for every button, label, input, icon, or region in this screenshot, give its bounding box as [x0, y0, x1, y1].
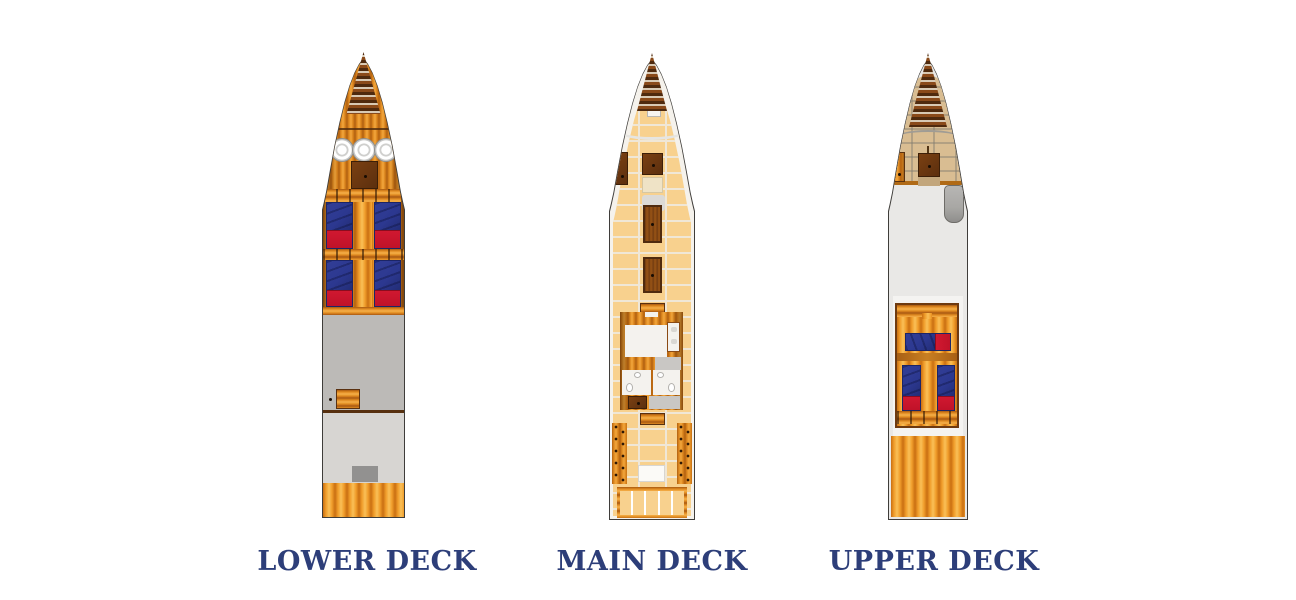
lounge-divider: [897, 353, 957, 361]
galley-fixture: [671, 327, 677, 332]
storage-room: [323, 413, 404, 483]
dining-table: [643, 205, 662, 243]
deckhouse: [620, 312, 683, 410]
locker-row: [897, 411, 957, 424]
saloon: [625, 325, 667, 357]
sun-lounge: [895, 303, 959, 428]
stern-deck: [891, 436, 965, 517]
sun-bed: [905, 333, 951, 351]
cabinet-row: [323, 249, 404, 260]
sun-bed: [902, 365, 921, 411]
bow-crossbeam: [323, 128, 404, 130]
galley-fixture: [671, 339, 677, 344]
helm-console: [918, 153, 940, 177]
seat-cushion: [642, 177, 663, 193]
hull: [610, 60, 694, 519]
bench-cushion: [673, 491, 684, 515]
dining-table: [643, 257, 662, 293]
side-rail: [612, 423, 627, 484]
galley-counter: [667, 322, 680, 352]
deck-label-upper: UPPER DECK: [829, 546, 1040, 577]
bench-cushions: [620, 491, 684, 515]
stern-bench: [617, 487, 687, 518]
storage-box: [352, 466, 378, 482]
anchor-winch: [352, 138, 376, 162]
upper-deck-plan: [888, 53, 968, 520]
console-box: [642, 153, 663, 175]
tender-dinghy: [944, 185, 964, 223]
console-base: [918, 176, 940, 186]
engine-room-hatch: [336, 389, 360, 409]
cabinet-row: [323, 189, 404, 202]
landing: [655, 357, 681, 370]
sun-bed: [937, 365, 955, 411]
lower-deck-plan: [322, 52, 405, 518]
bench-cushion: [660, 491, 671, 515]
bed: [326, 260, 353, 307]
bed: [326, 202, 353, 249]
hull: [889, 60, 967, 519]
bathroom: [653, 370, 680, 395]
bulkhead: [323, 307, 404, 315]
side-cabinet: [615, 152, 628, 185]
bed: [374, 202, 401, 249]
deck-label-main: MAIN DECK: [557, 546, 748, 577]
bathroom: [622, 370, 651, 395]
anchor-winch: [330, 138, 354, 162]
main-deck-plan: [609, 53, 695, 520]
stern-platform: [323, 483, 404, 517]
deck-label-lower: LOWER DECK: [257, 546, 476, 577]
bench-cushion: [646, 491, 657, 515]
doorway: [645, 312, 658, 317]
landing: [649, 396, 680, 409]
bench-cushion: [633, 491, 644, 515]
bench-cushion: [620, 491, 631, 515]
side-rail: [677, 423, 692, 484]
hull: [323, 59, 404, 517]
deck-plans-figure: LOWER DECK MAIN DECK UPPER DECK: [0, 0, 1296, 600]
deck-hatch: [638, 465, 665, 482]
bow-hatch: [351, 161, 378, 189]
stern-steps: [640, 413, 665, 425]
engine-room: [323, 315, 404, 410]
windshield-line: [612, 113, 692, 140]
headboard-notch: [922, 313, 932, 319]
storage-chest: [628, 396, 647, 409]
bed: [374, 260, 401, 307]
